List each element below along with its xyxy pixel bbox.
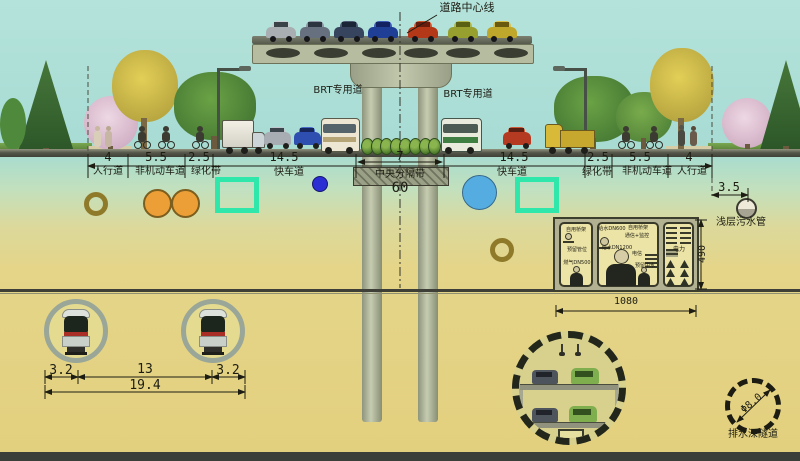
brt-lane-label-right: BRT专用道 <box>443 90 492 100</box>
sewer-offset-dim: 3.5 <box>718 181 740 193</box>
lane-name-sidewalk-right: 人行道 <box>677 167 707 177</box>
lane-width-sidewalk-left: 4 <box>104 151 111 163</box>
brt-lane-label-left: BRT专用道 <box>313 86 362 96</box>
median-width-dim: 7 <box>396 150 403 162</box>
road-cross-section-diagram: 道路中心线 BRT专用道 BRT专用道 4 5.5 2.5 14.5 7 14.… <box>0 0 800 461</box>
gallery-water-label-reclaimed: 预留中水 <box>635 264 655 269</box>
lane-width-green-left: 2.5 <box>188 151 210 163</box>
gallery-water-label-comm: 通信+监控 <box>625 234 649 239</box>
lane-name-green-left: 绿化带 <box>191 167 221 177</box>
lane-name-bike-right: 非机动车道 <box>622 167 672 177</box>
deep-tunnel-label: 排水深隧道 <box>728 430 778 440</box>
gallery-height-dim-text: 490 <box>698 245 708 263</box>
gallery-water-label-tray: 自用桥架 <box>628 226 648 231</box>
metro-dim-total: 19.4 <box>129 379 160 392</box>
shallow-sewer-label: 浅层污水管 <box>716 218 766 228</box>
gallery-gas-label-pipe: 燃气DN500 <box>563 261 590 266</box>
dimension-annotations <box>0 0 800 461</box>
lane-name-green-right: 绿化带 <box>582 168 612 178</box>
lane-name-sidewalk-left: 人行道 <box>93 167 123 177</box>
lane-name-bike-left: 非机动车道 <box>135 167 185 177</box>
gallery-water-label-dn600: 给水DN600 <box>598 227 625 232</box>
centerline-leader <box>407 15 437 33</box>
lane-width-sidewalk-right: 4 <box>685 151 692 163</box>
centerline-label: 道路中心线 <box>440 2 495 13</box>
lane-name-express-left: 快车道 <box>274 168 304 178</box>
median-label: 中央分隔带 <box>375 170 425 180</box>
gallery-width-dim-text: 1080 <box>614 297 638 307</box>
lane-name-express-right: 快车道 <box>497 168 527 178</box>
gallery-water-label-dn1200: 给水DN1200 <box>602 246 632 251</box>
lane-width-bike-left: 5.5 <box>145 151 167 163</box>
lane-width-express-left: 14.5 <box>270 151 299 163</box>
lane-width-green-right: 2.5 <box>587 151 609 163</box>
lane-width-bike-right: 5.5 <box>629 151 651 163</box>
metro-dim-middle: 13 <box>137 363 153 376</box>
gallery-power-label: 电力 <box>673 247 685 253</box>
gallery-gas-label-reserve: 预留管位 <box>567 248 587 253</box>
gallery-water-label-telecom: 电信 <box>632 252 642 257</box>
lane-width-express-right: 14.5 <box>500 151 529 163</box>
gallery-gas-label-tray: 自用桥架 <box>566 228 586 233</box>
metro-dim-right: 3.2 <box>216 364 239 377</box>
metro-dim-left: 3.2 <box>49 364 72 377</box>
total-width-dim: 60 <box>392 181 409 195</box>
